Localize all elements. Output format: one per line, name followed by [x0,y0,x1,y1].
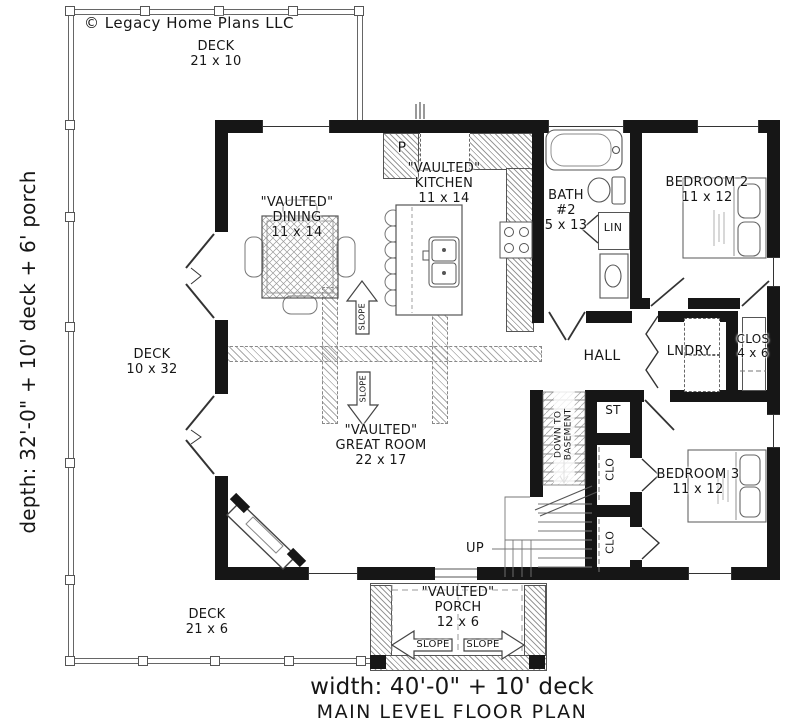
clo-door-2 [642,528,659,559]
deck-left-label: DECK10 x 32 [82,348,222,378]
pantry-label: P [392,140,412,156]
french-doors-lower [186,396,214,474]
bathtub [546,130,622,170]
fireplace [227,496,303,569]
closet-door [742,281,769,306]
stairs-up [492,486,597,577]
slope-text-up: SLOPE [357,299,366,335]
bedroom3-door [645,400,674,430]
deck-top-label: DECK21 x 10 [146,40,286,70]
porch-label: "VAULTED"PORCH12 x 6 [388,586,528,631]
slope-text-right: SLOPE [464,639,502,651]
dining-label: "VAULTED"DINING11 x 14 [227,196,367,241]
clo-label-2: CLO [605,522,618,562]
hall-label: HALL [562,348,642,364]
copyright-label: © Legacy Home Plans LLC [84,15,294,32]
kitchen-label: "VAULTED"KITCHEN11 x 14 [374,162,514,207]
closet-label: CLOS4 x 6 [713,333,793,361]
slope-text-left: SLOPE [414,639,452,651]
bedroom3-label: BEDROOM 311 x 12 [628,468,768,498]
bath-vanity-sink [600,254,628,298]
bedroom2-door [651,278,684,306]
great-room-label: "VAULTED"GREAT ROOM22 x 17 [301,424,461,469]
bath-door [549,312,585,340]
slope-text-down: SLOPE [358,371,367,407]
width-dimension-label: width: 40'-0" + 10' deck [252,674,652,700]
depth-dimension-label: depth: 32'-0" + 10' deck + 6' porch [17,62,43,642]
deck-bottom-label: DECK21 x 6 [137,608,277,638]
french-doors-upper [186,234,214,318]
linen-label: LIN [598,222,628,235]
down-to-basement-label: DOWN TOBASEMENT [554,384,575,484]
bedroom2-label: BEDROOM 211 x 12 [637,176,777,206]
floor-plan: © Legacy Home Plans LLC DECK21 x 10 DECK… [0,0,800,727]
plan-title: MAIN LEVEL FLOOR PLAN [252,702,652,724]
clo-label-1: CLO [605,449,618,489]
roof-vent-pipes [416,102,424,119]
storage-label: ST [596,404,630,418]
up-label: UP [460,542,490,557]
front-door [435,569,477,577]
